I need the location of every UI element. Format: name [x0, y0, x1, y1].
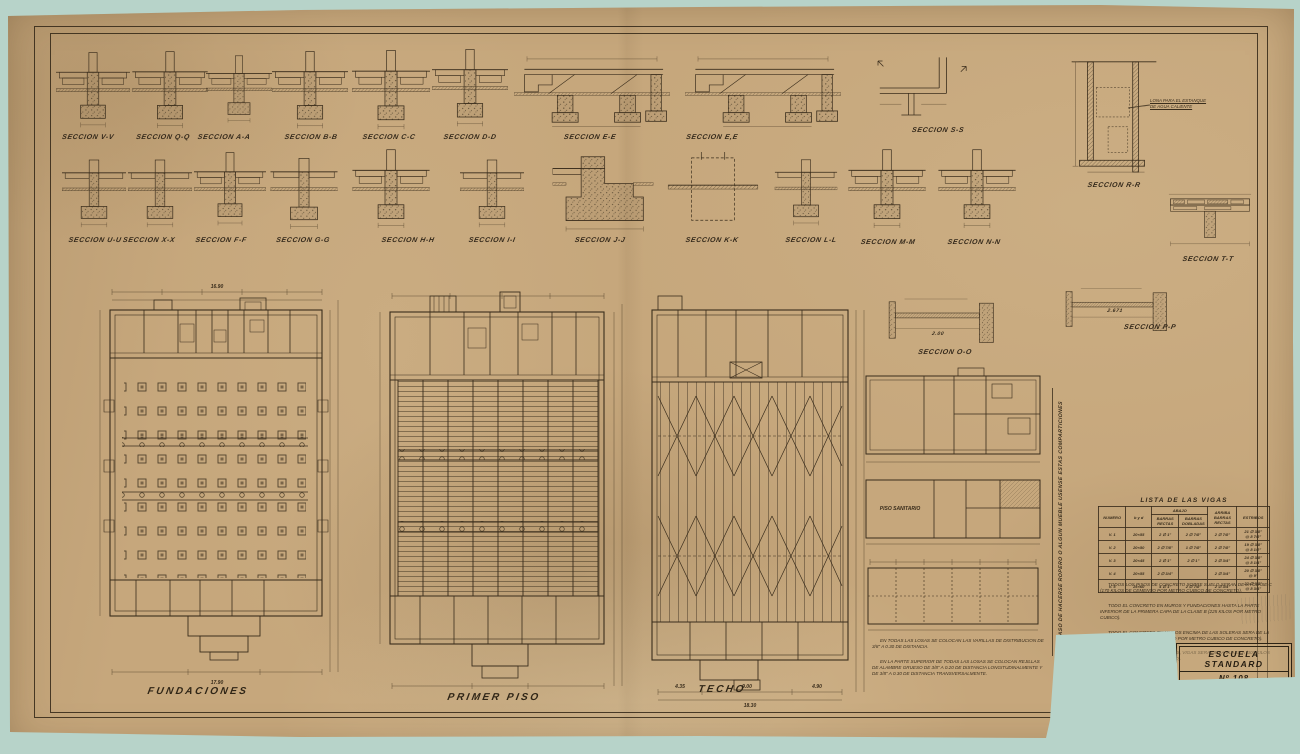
detail-plan-middle: PISO SANITARIO: [858, 474, 1048, 546]
section-label: SECCION R-R: [1087, 182, 1141, 189]
dim-label-oo: 2.00: [931, 331, 944, 337]
note-paragraph: EN TODAS LAS LOSAS SE COLOCAN LAS VARILL…: [872, 638, 1044, 650]
detail-plan-upper: [858, 366, 1048, 466]
section-label: SECCION U-U: [68, 237, 122, 244]
note-paragraph: EN LA PARTE SUPERIOR DE TODAS LAS LOSAS …: [872, 659, 1044, 678]
section-figure-dd: [432, 44, 508, 136]
cell: 2 ∅ 3/4": [1208, 554, 1237, 567]
section-label: SECCION O-O: [918, 349, 973, 356]
paper-sheet: SECCION V-V SECCION Q-Q SECCION A-A SECC…: [0, 0, 1300, 754]
section-figure-ss: [868, 52, 978, 124]
section-figure-ee2: [678, 52, 848, 130]
table-row: V. 120×552 ∅ 1"2 ∅ 7/8"2 ∅ 7/8"21 ∅ 3/8"…: [1099, 528, 1270, 541]
cell: V. 3: [1099, 554, 1126, 567]
section-label: SECCION N-N: [947, 239, 1001, 246]
header-numero: NUMERO: [1099, 507, 1126, 528]
pencil-smudge: [1237, 594, 1291, 624]
header-abajo-sub2: BARRAS DOBLADAS: [1179, 515, 1208, 528]
svg-text:PISO SANITARIO: PISO SANITARIO: [880, 506, 921, 512]
section-figure-uu: [58, 152, 130, 232]
cell: 20×55: [1126, 528, 1152, 541]
note-paragraph: TODOS LOS PISOS DE CONCRETO SOBRE SUELO …: [1100, 582, 1276, 594]
svg-text:4.90: 4.90: [811, 684, 822, 690]
section-label: SECCION F-F: [195, 237, 248, 244]
section-figure-mm: [846, 148, 928, 234]
section-label: SECCION I-I: [468, 237, 516, 244]
section-label: SECCION A-A: [197, 134, 251, 141]
section-figure-oo: [862, 292, 1024, 348]
tank-note: LONA PARA EL ESTANQUE DE AGUA CALIENTE: [1150, 98, 1230, 109]
cell: 2 ∅ 1": [1152, 554, 1179, 567]
section-figure-gg: [266, 150, 342, 234]
section-figure-bb: [272, 48, 348, 136]
detail-plan-lower: [858, 554, 1048, 636]
blueprint-scan: SECCION V-V SECCION Q-Q SECCION A-A SECC…: [0, 0, 1300, 754]
section-label: SECCION J-J: [574, 237, 626, 244]
section-figure-ff: [194, 148, 266, 234]
slab-notes: EN TODAS LAS LOSAS SE COLOCAN LAS VARILL…: [872, 632, 1044, 686]
beam-table-title: LISTA DE LAS VIGAS: [1098, 497, 1270, 504]
section-figure-xx: [126, 152, 194, 232]
title-block-number: Nº 108: [1180, 672, 1288, 685]
section-figure-kk: [664, 152, 762, 230]
section-figure-tt: [1156, 188, 1264, 250]
title-block-name: ESCUELA STANDARD: [1180, 647, 1288, 672]
plan-primer-piso: [372, 284, 634, 696]
header-byd: b y d: [1126, 507, 1152, 528]
section-figure-nn: [932, 148, 1022, 234]
title-block: ESCUELA STANDARD Nº 108: [1176, 643, 1292, 689]
cell: V. 2: [1099, 541, 1126, 554]
table-row: V. 220×502 ∅ 7/8"1 ∅ 7/8"2 ∅ 7/8"19 ∅ 3/…: [1099, 541, 1270, 554]
section-figure-vv: [56, 50, 130, 134]
cell: 2 ∅ 7/8": [1208, 528, 1237, 541]
section-figure-jj: [542, 150, 664, 234]
section-label: SECCION L-L: [785, 237, 838, 244]
section-figure-ee1: [508, 52, 676, 130]
section-label: SECCION B-B: [284, 134, 338, 141]
header-estribos: ESTRIBOS: [1237, 507, 1270, 528]
svg-text:4.35: 4.35: [674, 684, 685, 690]
section-label: SECCION M-M: [860, 239, 916, 246]
section-label: SECCION K-K: [685, 237, 739, 244]
note-paragraph: TODO EL CONCRETO EN MUROS ENCIMA DE LAS …: [1100, 630, 1276, 642]
dim-label-pp: 2.671: [1107, 308, 1124, 314]
cell: 2 ∅ 7/8": [1179, 528, 1208, 541]
svg-text:16.90: 16.90: [211, 284, 224, 290]
plan-techo: 4.35 9.00 4.90 18.30: [638, 288, 870, 708]
cell: 21 ∅ 3/8" @ 8 7/8": [1237, 528, 1270, 541]
section-figure-cc: [352, 48, 430, 136]
section-label: SECCION X-X: [122, 237, 175, 244]
cell: V. 1: [1099, 528, 1126, 541]
section-label: SECCION P-P: [1123, 324, 1176, 331]
plan-fundaciones: 16.90: [92, 280, 342, 692]
section-figure-rr: [1068, 50, 1160, 178]
section-label: SECCION V-V: [61, 134, 114, 141]
section-label: SECCION T-T: [1182, 256, 1234, 263]
side-note-vertical: EN CASO DE HACERSE ROPERO O ALGUN MUEBLE…: [1058, 396, 1065, 655]
section-figure-qq: [132, 50, 208, 134]
cell: 2 ∅ 1": [1179, 554, 1208, 567]
section-figure-hh: [348, 148, 434, 234]
section-label: SECCION Q-Q: [136, 134, 191, 141]
cell: 1 ∅ 7/8": [1179, 541, 1208, 554]
cell: 2 ∅ 1": [1152, 528, 1179, 541]
header-arriba: ARRIBA BARRAS RECTAS: [1208, 507, 1237, 528]
cell: 20×45: [1126, 554, 1152, 567]
cell: 19 ∅ 3/8" @ 8 1/2": [1237, 541, 1270, 554]
section-label: SECCION H-H: [381, 237, 435, 244]
svg-text:18.30: 18.30: [744, 703, 757, 708]
vertical-dim-line: [1052, 388, 1053, 656]
cell: 2 ∅ 7/8": [1152, 541, 1179, 554]
plan-label-techo: TECHO: [697, 684, 746, 695]
section-figure-ii: [452, 152, 532, 232]
section-label: SECCION C-C: [362, 134, 416, 141]
table-row: V. 320×452 ∅ 1"2 ∅ 1"2 ∅ 3/4"24 ∅ 3/8" @…: [1099, 554, 1270, 567]
plan-label-primer-piso: PRIMER PISO: [446, 692, 541, 703]
section-label: SECCION E-E: [563, 134, 616, 141]
header-abajo: ABAJO: [1152, 507, 1208, 515]
section-label: SECCION G-G: [276, 237, 331, 244]
cell: 20×50: [1126, 541, 1152, 554]
section-figure-ll: [764, 152, 848, 230]
section-figure-aa: [206, 46, 272, 136]
plan-label-fundaciones: FUNDACIONES: [147, 686, 250, 697]
cell: 24 ∅ 3/8" @ 8 1/4": [1237, 554, 1270, 567]
section-label: SECCION D-D: [443, 134, 497, 141]
cell: 2 ∅ 7/8": [1208, 541, 1237, 554]
section-label: SECCION S-S: [911, 127, 964, 134]
section-label: SECCION E,E: [686, 134, 739, 141]
header-abajo-sub1: BARRAS RECTAS: [1152, 515, 1179, 528]
